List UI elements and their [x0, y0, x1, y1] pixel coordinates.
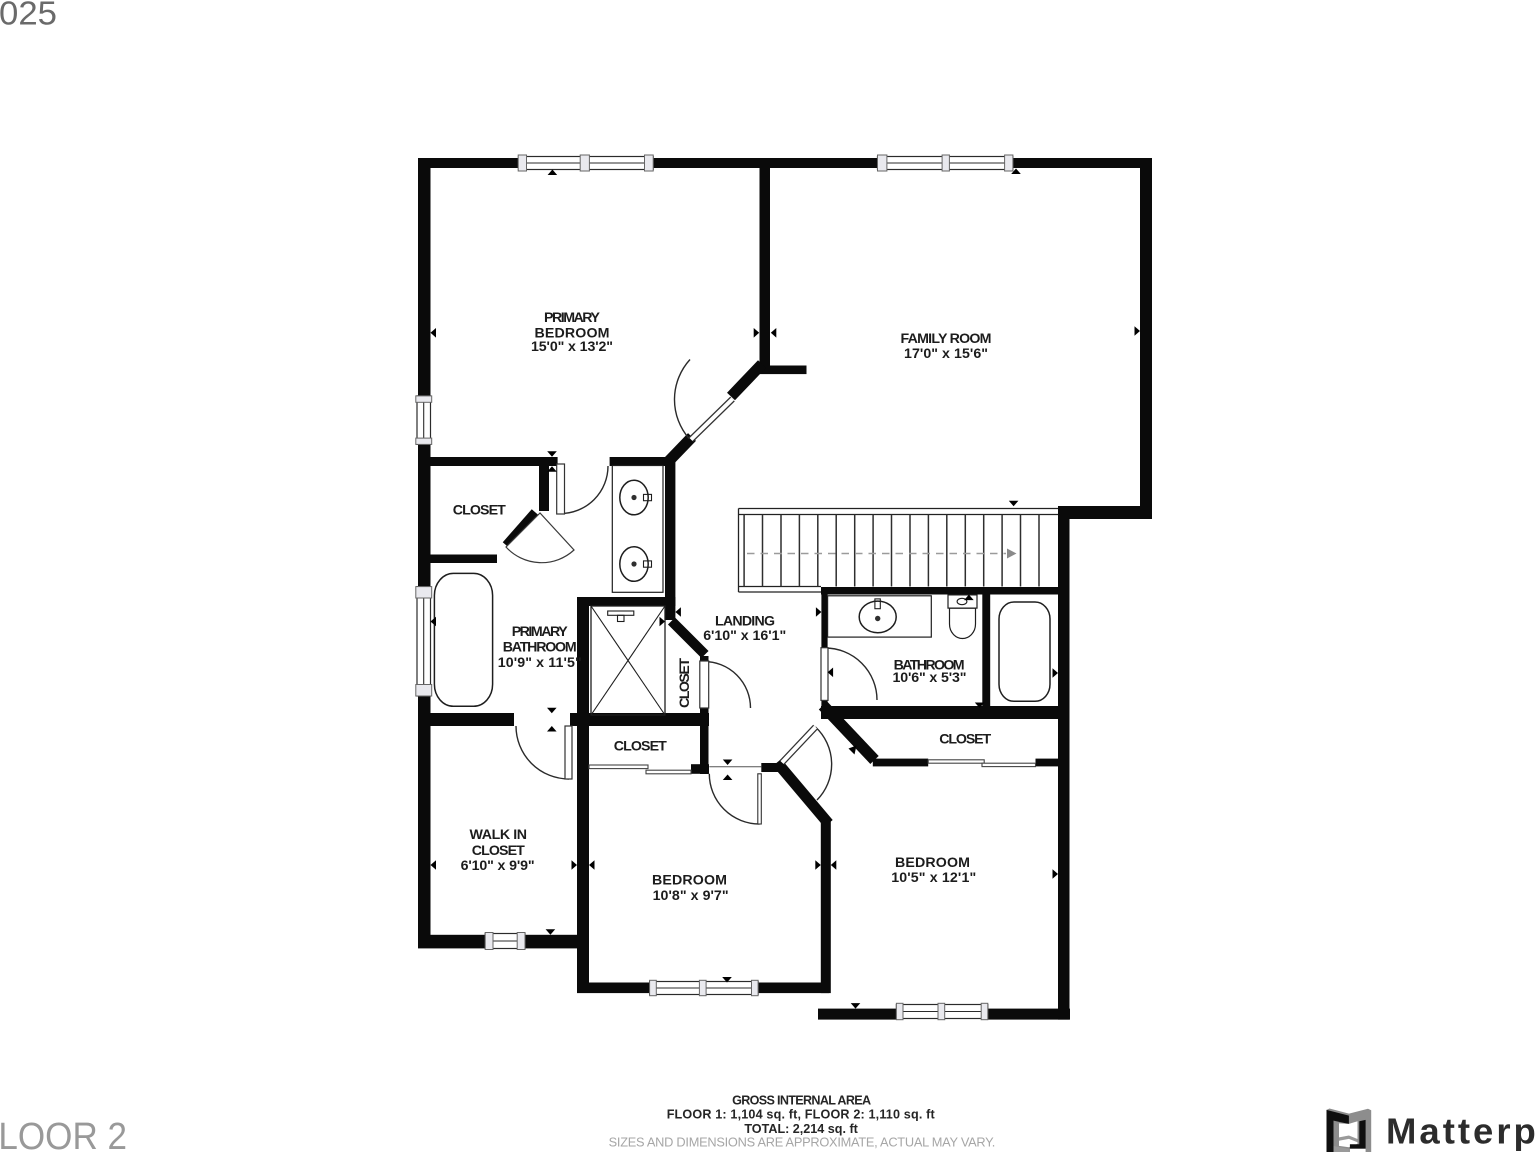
- svg-text:CLOSET: CLOSET: [453, 503, 506, 519]
- svg-text:WALK IN: WALK IN: [470, 827, 528, 843]
- svg-text:CLOSET: CLOSET: [677, 658, 693, 708]
- svg-text:10'6" x 5'3": 10'6" x 5'3": [893, 670, 967, 686]
- svg-text:Matterport: Matterport: [1386, 1111, 1536, 1152]
- svg-text:BATHROOM: BATHROOM: [503, 640, 577, 656]
- svg-text:6'10" x 9'9": 6'10" x 9'9": [461, 858, 535, 874]
- svg-text:BEDROOM: BEDROOM: [895, 855, 970, 871]
- svg-text:CLOSET: CLOSET: [472, 843, 525, 859]
- svg-text:15'0" x 13'2": 15'0" x 13'2": [531, 339, 613, 355]
- svg-text:10'8" x 9'7": 10'8" x 9'7": [653, 888, 729, 904]
- svg-text:BEDROOM: BEDROOM: [652, 873, 727, 889]
- svg-text:CLOSET: CLOSET: [939, 732, 991, 748]
- svg-text:10'5" x 12'1": 10'5" x 12'1": [891, 870, 976, 886]
- svg-text:025: 025: [0, 0, 57, 32]
- svg-text:FLOOR 2: FLOOR 2: [0, 1116, 127, 1152]
- svg-text:LANDING: LANDING: [715, 614, 775, 630]
- svg-text:CLOSET: CLOSET: [614, 739, 667, 755]
- svg-text:17'0" x 15'6": 17'0" x 15'6": [904, 346, 988, 362]
- svg-text:FLOOR 1: 1,104 sq. ft, FLOOR 2: FLOOR 1: 1,104 sq. ft, FLOOR 2: 1,110 sq…: [667, 1108, 936, 1122]
- svg-text:GROSS INTERNAL AREA: GROSS INTERNAL AREA: [732, 1094, 871, 1108]
- svg-text:FAMILY ROOM: FAMILY ROOM: [901, 331, 992, 347]
- svg-text:10'9" x 11'5": 10'9" x 11'5": [498, 655, 582, 671]
- svg-text:SIZES AND DIMENSIONS ARE APPRO: SIZES AND DIMENSIONS ARE APPROXIMATE, AC…: [609, 1135, 996, 1150]
- svg-text:PRIMARY: PRIMARY: [512, 624, 569, 640]
- svg-text:6'10" x 16'1": 6'10" x 16'1": [703, 628, 786, 644]
- svg-text:PRIMARY: PRIMARY: [544, 310, 601, 326]
